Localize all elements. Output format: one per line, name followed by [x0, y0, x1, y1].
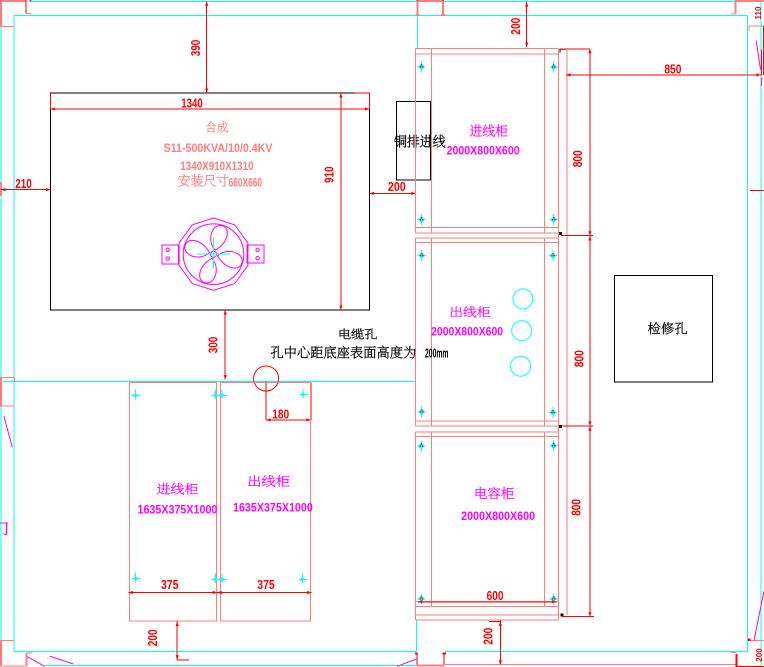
svg-text:800: 800	[570, 499, 584, 516]
svg-text:800: 800	[573, 350, 587, 367]
svg-text:S11-500KVA/10/0.4KV: S11-500KVA/10/0.4KV	[164, 141, 273, 155]
svg-text:375: 375	[257, 578, 275, 592]
svg-text:200: 200	[146, 629, 160, 646]
svg-text:200: 200	[755, 648, 764, 662]
svg-text:300: 300	[207, 337, 221, 354]
svg-text:110: 110	[754, 6, 763, 19]
svg-text:660X660: 660X660	[229, 176, 263, 190]
svg-text:210: 210	[15, 177, 32, 191]
svg-text:600: 600	[487, 589, 504, 603]
svg-text:800: 800	[571, 150, 585, 167]
svg-text:200: 200	[388, 180, 406, 194]
svg-text:200: 200	[509, 18, 523, 35]
svg-text:910: 910	[323, 166, 337, 183]
svg-text:390: 390	[189, 40, 203, 57]
svg-text:850: 850	[664, 62, 681, 76]
svg-text:1340: 1340	[181, 97, 203, 111]
svg-text:1340X910X1310: 1340X910X1310	[180, 159, 254, 173]
svg-text:180: 180	[272, 407, 289, 421]
svg-text:2000X800X600: 2000X800X600	[461, 509, 535, 523]
svg-text:2000X800X600: 2000X800X600	[431, 325, 503, 339]
svg-text:1635X375X1000: 1635X375X1000	[138, 503, 218, 517]
svg-text:1635X375X1000: 1635X375X1000	[233, 501, 313, 515]
svg-text:2000X800X600: 2000X800X600	[447, 143, 520, 157]
svg-text:200: 200	[481, 628, 495, 645]
svg-text:375: 375	[161, 578, 179, 592]
svg-text:200mm: 200mm	[425, 347, 449, 361]
